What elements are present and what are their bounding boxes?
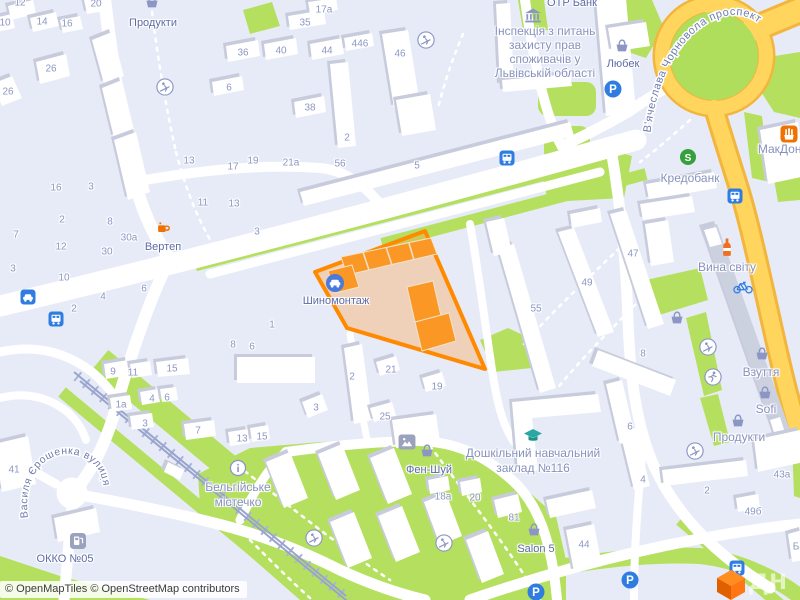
building [640, 196, 695, 220]
building [558, 228, 614, 337]
roundabout-island [670, 12, 758, 100]
building [646, 172, 717, 200]
basket-icon[interactable] [614, 38, 631, 55]
building [310, 38, 344, 60]
bus-icon[interactable] [49, 312, 64, 327]
building [92, 32, 124, 84]
bicycle-icon[interactable] [733, 280, 753, 294]
basket-icon[interactable] [419, 443, 436, 460]
playground-icon[interactable] [417, 31, 435, 49]
building [422, 372, 446, 392]
selection [315, 231, 485, 369]
building [288, 10, 326, 30]
building [130, 361, 152, 378]
car-icon[interactable] [21, 290, 36, 305]
watermark-text: дн [749, 563, 788, 597]
basket-icon[interactable] [669, 310, 686, 327]
basket-icon[interactable] [754, 346, 771, 363]
parking-icon[interactable]: P [527, 583, 545, 600]
basket-icon[interactable] [730, 413, 747, 430]
basket-icon[interactable] [757, 385, 774, 402]
building [160, 387, 178, 402]
building [0, 76, 22, 106]
wine-icon[interactable] [721, 237, 733, 257]
building [302, 394, 328, 418]
building [662, 460, 748, 486]
map-canvas[interactable]: В'ячеслава Чорновола проспект Василя Єро… [0, 0, 800, 600]
building [114, 132, 150, 200]
watermark-logo: дн [716, 569, 800, 600]
building [344, 344, 372, 424]
fuel-icon[interactable] [70, 533, 86, 549]
building [704, 227, 722, 247]
basket-icon[interactable] [526, 522, 543, 539]
map-graphics: В'ячеслава Чорновола проспект Василя Єро… [0, 0, 800, 600]
playground-icon[interactable] [699, 338, 717, 356]
playground-icon[interactable] [156, 78, 174, 96]
building [110, 395, 132, 412]
playground-icon[interactable] [435, 534, 453, 552]
building [370, 402, 396, 422]
building [250, 425, 270, 442]
running-icon[interactable] [704, 368, 722, 386]
svg-text:S: S [685, 153, 692, 164]
building [570, 208, 602, 228]
svg-text:P: P [626, 575, 634, 587]
building [237, 357, 315, 383]
building [344, 33, 374, 51]
building [30, 12, 59, 32]
building [264, 38, 298, 60]
svg-text:P: P [609, 84, 617, 96]
building [60, 16, 83, 33]
building [156, 358, 190, 377]
building [294, 96, 326, 118]
bus-icon[interactable] [500, 151, 515, 166]
building [36, 54, 70, 84]
playground-icon[interactable] [686, 442, 704, 460]
building [486, 218, 512, 256]
building [102, 80, 134, 138]
building [382, 30, 420, 108]
building [130, 413, 154, 430]
playground-icon[interactable] [305, 529, 323, 547]
coffee-icon[interactable] [155, 220, 171, 236]
fastfood-icon[interactable] [781, 126, 798, 143]
building [226, 40, 260, 62]
parking-icon[interactable]: P [621, 571, 639, 589]
building [228, 429, 250, 446]
bus-icon[interactable] [728, 189, 743, 204]
building [788, 530, 800, 562]
cube-logo-icon [716, 569, 746, 600]
building [396, 94, 436, 136]
building [645, 220, 674, 266]
parking-icon[interactable]: P [604, 80, 622, 98]
building [376, 356, 400, 376]
attribution: © OpenMapTiles © OpenStreetMap contribut… [0, 581, 247, 598]
grad-icon[interactable] [523, 428, 543, 444]
info-icon[interactable] [230, 460, 247, 477]
building [546, 490, 596, 518]
building [330, 62, 356, 148]
building [308, 0, 338, 14]
money-icon[interactable]: S [680, 149, 697, 166]
svg-text:P: P [532, 587, 540, 599]
building [496, 3, 514, 86]
building [736, 494, 760, 512]
bank-icon[interactable] [524, 8, 543, 25]
building [212, 76, 244, 96]
basket-icon[interactable] [144, 0, 161, 11]
photo-icon[interactable] [399, 435, 416, 450]
tire-car-icon[interactable] [326, 274, 345, 293]
